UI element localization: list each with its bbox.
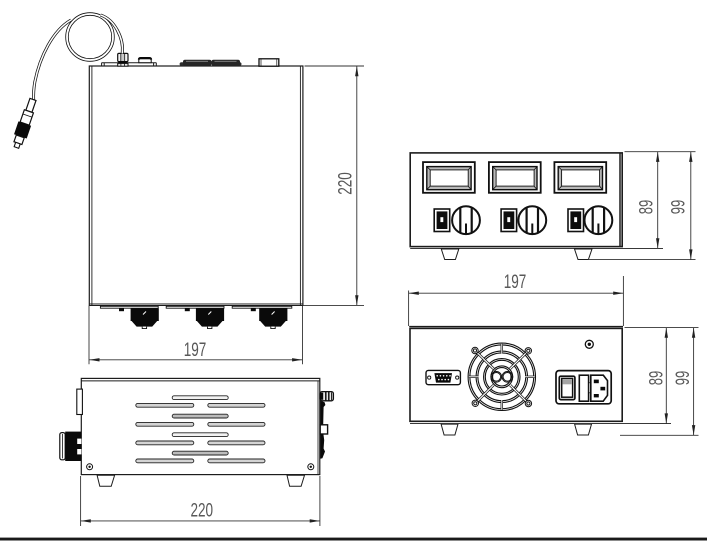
svg-text:99: 99 — [672, 371, 694, 386]
svg-text:89: 89 — [646, 371, 668, 386]
svg-text:220: 220 — [191, 500, 214, 522]
svg-text:197: 197 — [504, 271, 527, 293]
svg-text:89: 89 — [635, 200, 657, 215]
svg-text:197: 197 — [184, 339, 207, 361]
svg-text:220: 220 — [335, 172, 357, 195]
svg-text:99: 99 — [668, 200, 690, 215]
